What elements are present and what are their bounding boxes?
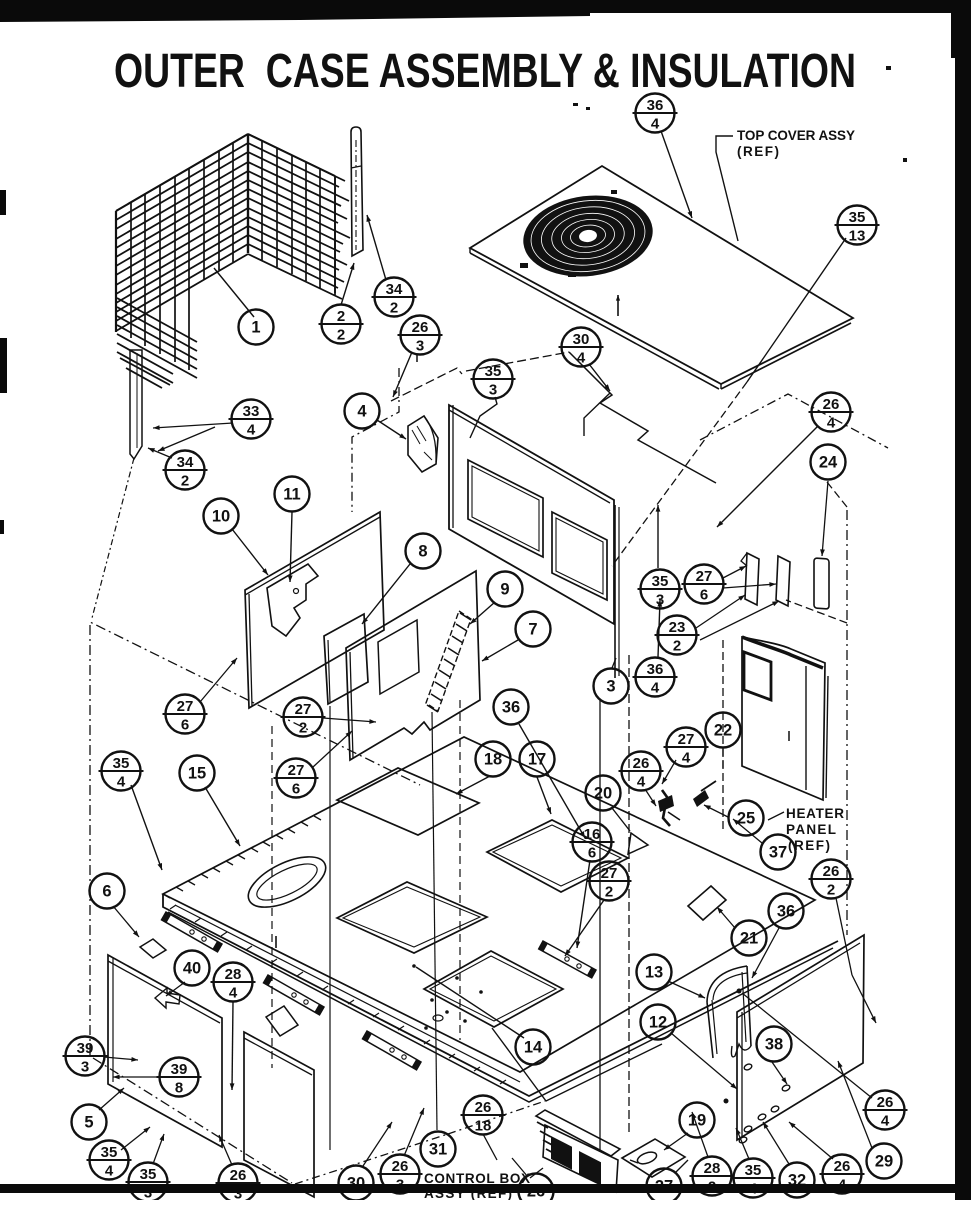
svg-text:10: 10 — [212, 508, 230, 526]
svg-text:6: 6 — [700, 587, 708, 604]
svg-text:22: 22 — [714, 722, 732, 740]
svg-text:4: 4 — [881, 1113, 890, 1130]
svg-text:40: 40 — [183, 960, 201, 978]
svg-text:9: 9 — [500, 581, 509, 599]
svg-text:27: 27 — [288, 762, 305, 779]
svg-text:26: 26 — [834, 1158, 851, 1175]
svg-text:36: 36 — [502, 699, 520, 717]
svg-text:39: 39 — [77, 1040, 94, 1057]
svg-text:4: 4 — [247, 422, 256, 439]
svg-text:13: 13 — [645, 964, 663, 982]
svg-text:6: 6 — [588, 845, 596, 862]
svg-text:18: 18 — [484, 751, 502, 769]
svg-text:27: 27 — [177, 698, 194, 715]
svg-text:35: 35 — [485, 363, 502, 380]
svg-text:PANEL: PANEL — [786, 822, 836, 837]
svg-text:4: 4 — [357, 403, 367, 421]
svg-text:5: 5 — [84, 1114, 93, 1132]
svg-text:2: 2 — [605, 884, 613, 901]
svg-text:4: 4 — [827, 415, 836, 432]
svg-text:36: 36 — [647, 97, 664, 114]
svg-text:36: 36 — [647, 661, 664, 678]
svg-text:4: 4 — [117, 774, 126, 791]
svg-text:26: 26 — [230, 1167, 247, 1184]
svg-text:6: 6 — [102, 883, 111, 901]
svg-text:26: 26 — [633, 755, 650, 772]
svg-text:20: 20 — [594, 785, 612, 803]
svg-text:12: 12 — [649, 1014, 667, 1032]
svg-text:24: 24 — [819, 454, 838, 472]
svg-text:33: 33 — [243, 403, 260, 420]
svg-text:26: 26 — [412, 319, 429, 336]
svg-text:14: 14 — [524, 1039, 543, 1057]
svg-text:3: 3 — [606, 678, 615, 696]
svg-text:30: 30 — [573, 331, 590, 348]
svg-text:26: 26 — [877, 1094, 894, 1111]
svg-text:26: 26 — [392, 1158, 409, 1175]
svg-text:35: 35 — [745, 1162, 762, 1179]
svg-text:29: 29 — [875, 1153, 893, 1171]
svg-text:6: 6 — [292, 781, 300, 798]
svg-text:2: 2 — [299, 720, 307, 737]
svg-text:4: 4 — [682, 750, 691, 767]
svg-text:3: 3 — [81, 1059, 89, 1076]
svg-text:31: 31 — [429, 1141, 447, 1159]
svg-text:(REF): (REF) — [737, 144, 779, 159]
svg-text:11: 11 — [283, 486, 300, 504]
svg-text:37: 37 — [769, 844, 787, 862]
svg-text:2: 2 — [337, 327, 345, 344]
svg-text:27: 27 — [678, 731, 695, 748]
svg-text:18: 18 — [475, 1118, 492, 1135]
svg-text:35: 35 — [652, 573, 669, 590]
svg-text:34: 34 — [177, 454, 194, 471]
svg-text:17: 17 — [528, 751, 546, 769]
svg-text:23: 23 — [669, 619, 686, 636]
svg-text:8: 8 — [418, 543, 427, 561]
svg-text:6: 6 — [181, 717, 189, 734]
svg-text:13: 13 — [849, 228, 866, 245]
svg-text:16: 16 — [584, 826, 601, 843]
svg-text:2: 2 — [673, 638, 681, 655]
svg-text:2: 2 — [181, 473, 189, 490]
svg-text:2: 2 — [827, 882, 835, 899]
svg-text:36: 36 — [777, 903, 795, 921]
svg-text:35: 35 — [101, 1144, 118, 1161]
svg-text:HEATER: HEATER — [786, 806, 844, 821]
svg-text:CONTROL BOX: CONTROL BOX — [424, 1171, 530, 1186]
svg-text:3: 3 — [656, 592, 664, 609]
svg-text:4: 4 — [577, 350, 586, 367]
svg-text:27: 27 — [601, 865, 618, 882]
svg-text:TOP COVER ASSY: TOP COVER ASSY — [737, 128, 855, 143]
svg-text:27: 27 — [696, 568, 713, 585]
svg-text:15: 15 — [188, 765, 206, 783]
svg-text:26: 26 — [823, 863, 840, 880]
svg-text:2: 2 — [337, 308, 345, 325]
svg-text:28: 28 — [704, 1160, 721, 1177]
svg-text:34: 34 — [386, 281, 403, 298]
svg-text:3: 3 — [489, 382, 497, 399]
svg-text:2: 2 — [390, 300, 398, 317]
svg-text:26: 26 — [823, 396, 840, 413]
svg-text:27: 27 — [295, 701, 312, 718]
svg-text:4: 4 — [651, 680, 660, 697]
svg-text:35: 35 — [113, 755, 130, 772]
svg-text:1: 1 — [251, 319, 260, 337]
svg-text:26: 26 — [475, 1099, 492, 1116]
svg-text:19: 19 — [688, 1112, 706, 1130]
svg-text:38: 38 — [765, 1036, 783, 1054]
svg-text:21: 21 — [740, 930, 758, 948]
svg-text:25: 25 — [737, 810, 755, 828]
svg-text:35: 35 — [849, 209, 866, 226]
svg-text:OUTER CASE ASSEMBLY & INSULAT: OUTER CASE ASSEMBLY & INSULATION — [114, 45, 856, 98]
svg-text:7: 7 — [528, 621, 537, 639]
svg-text:4: 4 — [637, 774, 646, 791]
svg-text:4: 4 — [229, 985, 238, 1002]
svg-text:4: 4 — [105, 1163, 114, 1180]
svg-text:39: 39 — [171, 1061, 188, 1078]
svg-text:8: 8 — [175, 1080, 183, 1097]
svg-text:4: 4 — [651, 116, 660, 133]
svg-text:35: 35 — [140, 1166, 157, 1183]
svg-text:3: 3 — [416, 338, 424, 355]
svg-text:28: 28 — [225, 966, 242, 983]
